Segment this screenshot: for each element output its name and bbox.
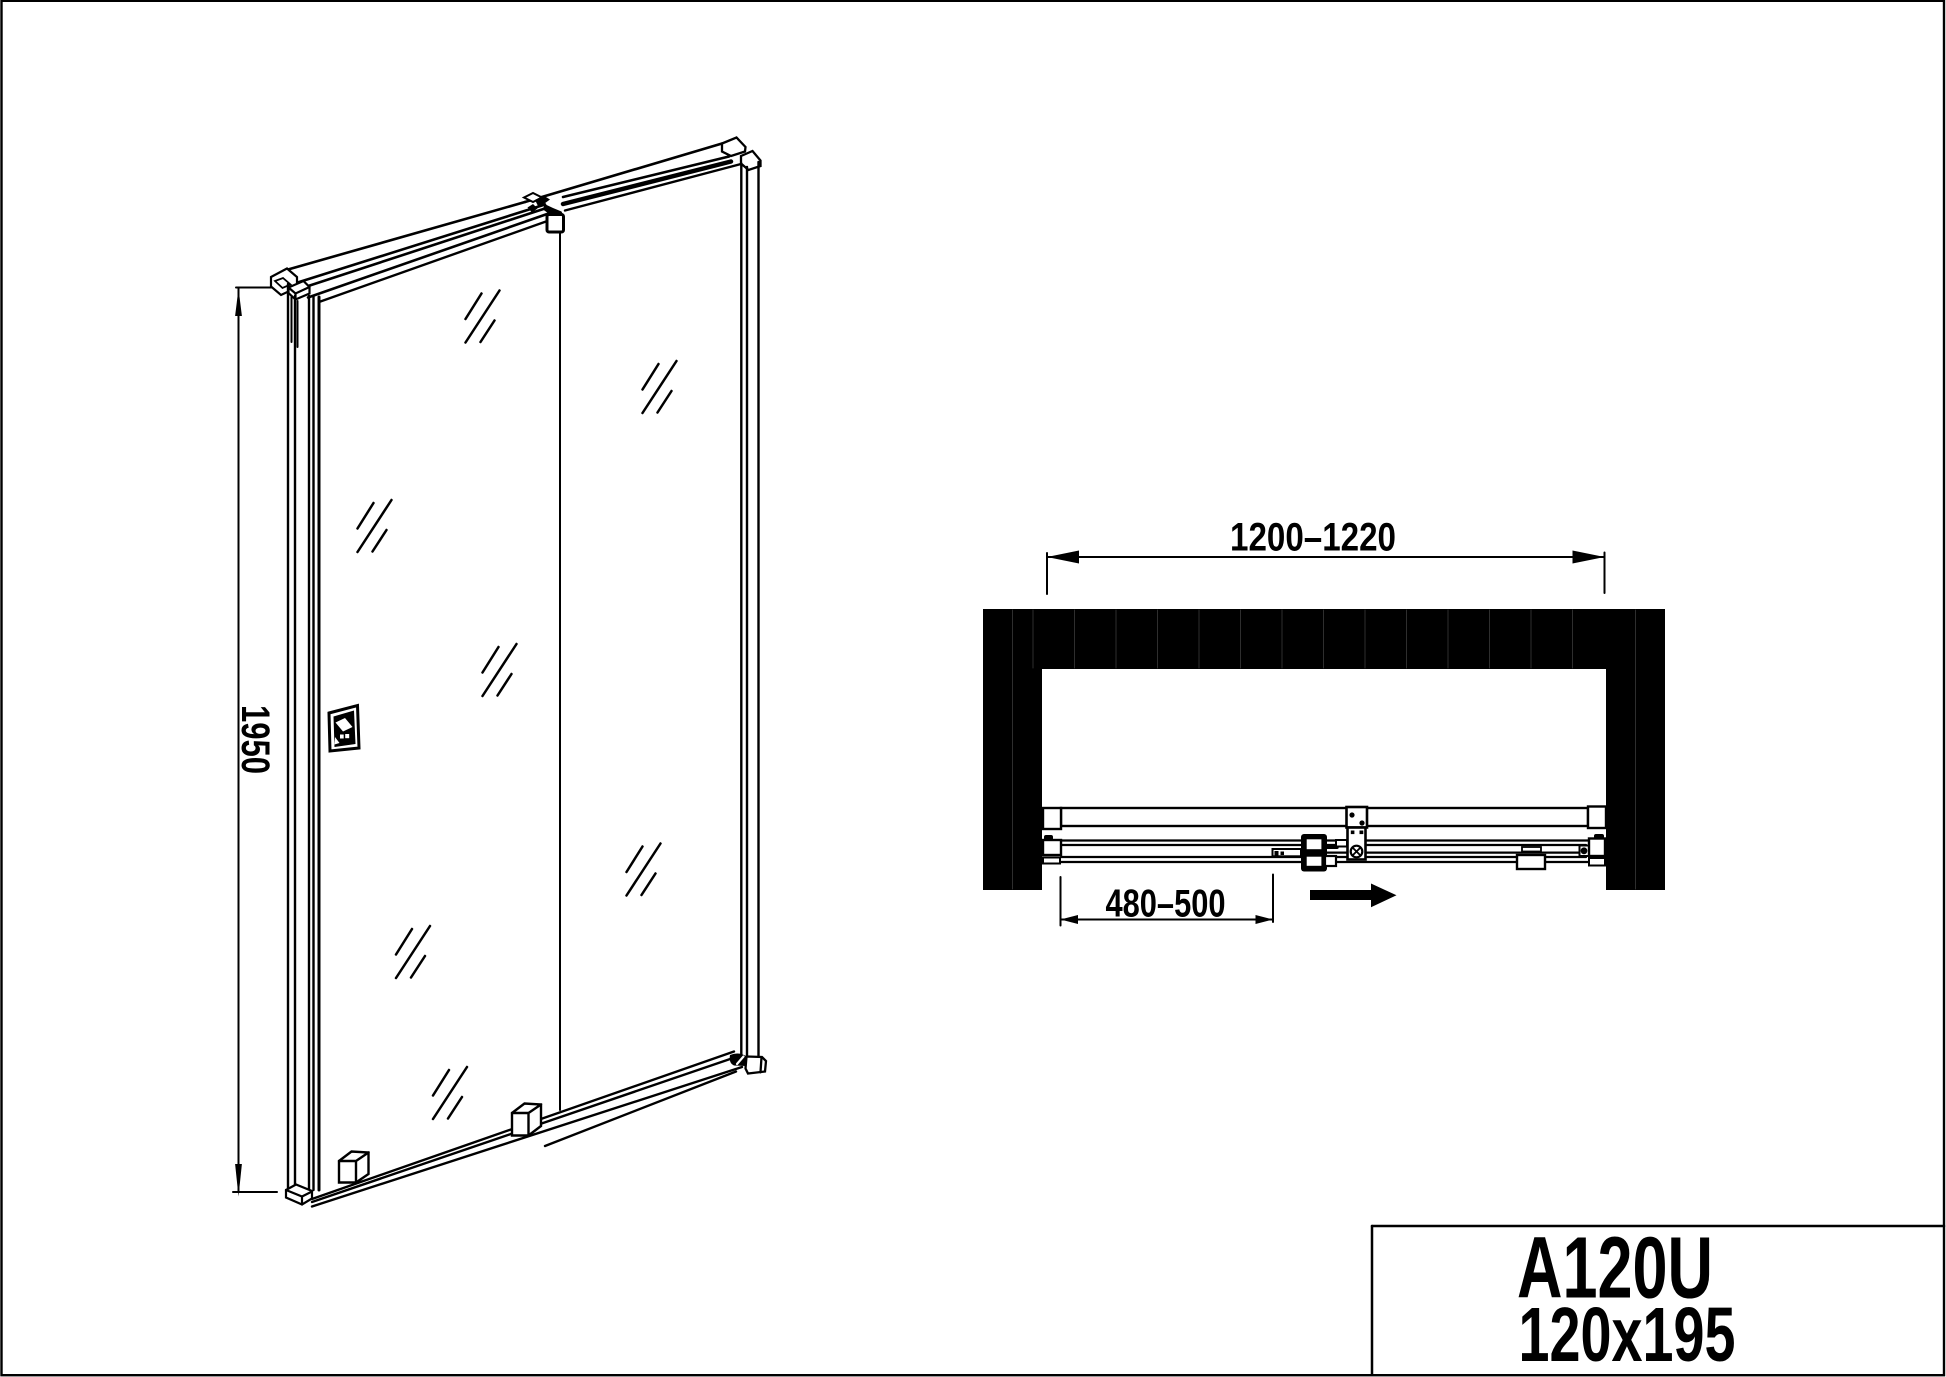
svg-text:1950: 1950 (233, 705, 277, 774)
svg-text:480–500: 480–500 (1106, 883, 1226, 926)
svg-text:1200–1220: 1200–1220 (1230, 516, 1396, 560)
svg-text:120x195: 120x195 (1519, 1292, 1736, 1377)
